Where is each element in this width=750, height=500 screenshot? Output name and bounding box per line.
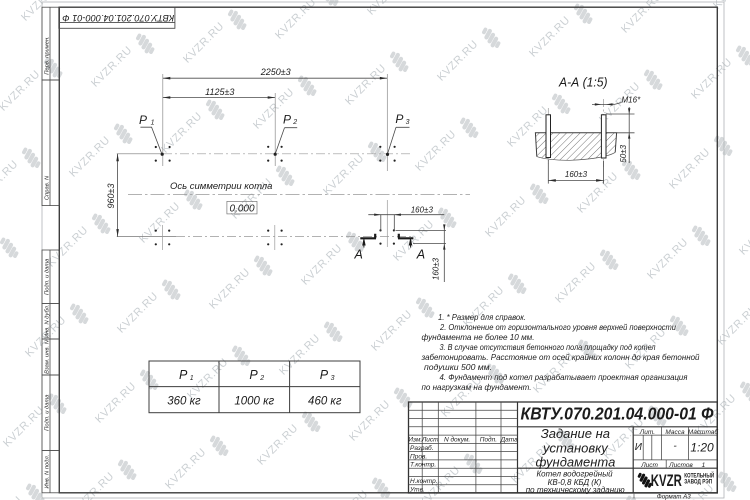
svg-text:А-А (1:5): А-А (1:5) xyxy=(558,75,607,90)
svg-text:160±3: 160±3 xyxy=(432,257,441,280)
svg-text:Инв. N дубл.: Инв. N дубл. xyxy=(44,305,50,339)
svg-text:3: 3 xyxy=(406,119,410,126)
svg-text:Утв.: Утв. xyxy=(409,486,425,493)
svg-text:Лист: Лист xyxy=(421,437,439,444)
svg-text:Инв. N подл.: Инв. N подл. xyxy=(44,455,50,489)
svg-text:по техническому заданию: по техническому заданию xyxy=(526,485,625,494)
svg-text:P: P xyxy=(395,112,403,126)
svg-text:1:20: 1:20 xyxy=(690,441,714,455)
svg-text:КВТУ.070.201.04.000-01 Ф: КВТУ.070.201.04.000-01 Ф xyxy=(62,12,174,23)
svg-text:Разраб.: Разраб. xyxy=(410,444,434,452)
svg-text:KVZR: KVZR xyxy=(651,471,682,490)
svg-text:Взам. инв. N: Взам. инв. N xyxy=(44,339,50,374)
svg-text:460 кг: 460 кг xyxy=(308,396,342,408)
svg-text:360 кг: 360 кг xyxy=(167,396,201,408)
svg-text:Подп. и дата: Подп. и дата xyxy=(44,394,50,431)
svg-text:2: 2 xyxy=(292,119,297,126)
svg-text:3: 3 xyxy=(331,375,335,382)
svg-text:Дата: Дата xyxy=(500,437,519,444)
svg-text:1: 1 xyxy=(151,120,155,127)
svg-text:P: P xyxy=(139,113,147,127)
svg-text:Справ. N: Справ. N xyxy=(44,175,50,200)
svg-text:Подп. и дата: Подп. и дата xyxy=(44,258,50,295)
svg-text:P: P xyxy=(320,368,329,382)
svg-text:2: 2 xyxy=(259,375,264,382)
svg-text:Изм.: Изм. xyxy=(408,437,422,444)
svg-text:Подп.: Подп. xyxy=(480,436,497,444)
svg-text:КВТУ.070.201.04.000-01 Ф: КВТУ.070.201.04.000-01 Ф xyxy=(521,404,714,424)
svg-text:P: P xyxy=(179,368,188,382)
svg-text:подушки 500 мм.: подушки 500 мм. xyxy=(424,362,492,372)
svg-text:Т.контр.: Т.контр. xyxy=(410,462,436,469)
svg-text:1: 1 xyxy=(702,462,706,469)
svg-text:160±3: 160±3 xyxy=(411,205,434,214)
svg-text:P: P xyxy=(283,113,291,127)
svg-text:1000 кг: 1000 кг xyxy=(234,396,274,408)
svg-text:М16*: М16* xyxy=(622,96,642,105)
svg-text:забетонировать. Расстояние от: забетонировать. Расстояние от осей крайн… xyxy=(421,352,700,362)
svg-text:Лит.: Лит. xyxy=(639,429,655,436)
svg-text:фундамента не более 10 мм.: фундамента не более 10 мм. xyxy=(422,332,535,342)
svg-text:по нагрузкам на фундамент.: по нагрузкам на фундамент. xyxy=(422,382,532,392)
svg-text:P: P xyxy=(249,368,258,382)
svg-text:1125±3: 1125±3 xyxy=(205,87,234,97)
svg-text:Листов: Листов xyxy=(668,462,693,469)
svg-text:Лист: Лист xyxy=(640,462,658,469)
svg-text:ЗАВОД РЭП: ЗАВОД РЭП xyxy=(684,479,712,485)
svg-text:Ось симметрии котла: Ось симметрии котла xyxy=(170,181,272,192)
svg-text:3. В случае отсутствия бетонн: 3. В случае отсутствия бетонного пола пл… xyxy=(440,342,656,352)
svg-text:Масштаб: Масштаб xyxy=(688,428,719,436)
svg-text:Формат А3: Формат А3 xyxy=(657,494,691,500)
svg-text:фундамента: фундамента xyxy=(535,455,615,470)
svg-text:А: А xyxy=(354,247,363,261)
svg-text:Масса: Масса xyxy=(665,429,685,436)
svg-text:160±3: 160±3 xyxy=(565,170,588,179)
svg-text:2250±3: 2250±3 xyxy=(260,67,291,77)
svg-text:Н.контр.: Н.контр. xyxy=(410,478,438,485)
svg-text:Перв. примен.: Перв. примен. xyxy=(44,36,50,75)
svg-text:4. Фундамент под котел разраб: 4. Фундамент под котел разрабатывает про… xyxy=(440,372,689,382)
svg-text:1. * Размер для справок.: 1. * Размер для справок. xyxy=(438,312,526,322)
svg-text:2. Отклонение от горизонтальн: 2. Отклонение от горизонтального уровня … xyxy=(439,322,676,332)
svg-text:N докум.: N докум. xyxy=(444,436,470,444)
svg-text:Задание на: Задание на xyxy=(541,426,610,441)
svg-text:И: И xyxy=(635,442,643,453)
svg-text:1: 1 xyxy=(190,375,194,382)
svg-text:Пров.: Пров. xyxy=(410,453,427,460)
svg-text:960±3: 960±3 xyxy=(106,184,116,209)
svg-text:50±3: 50±3 xyxy=(619,144,628,162)
svg-text:установку: установку xyxy=(542,440,609,455)
svg-text:А: А xyxy=(416,247,425,261)
svg-text:0,000: 0,000 xyxy=(229,203,254,214)
